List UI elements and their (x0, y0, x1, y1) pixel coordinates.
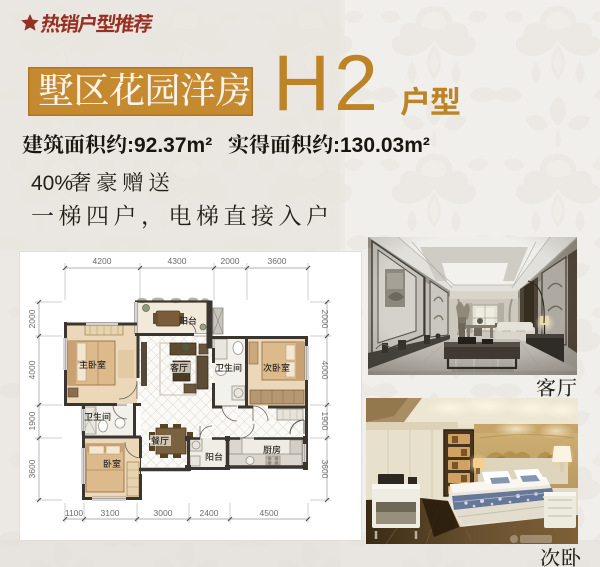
svg-text:4000: 4000 (27, 360, 37, 379)
svg-text:1900: 1900 (320, 412, 330, 431)
svg-text::92.37m²: :92.37m² (127, 134, 212, 157)
svg-text:3600: 3600 (320, 460, 330, 479)
svg-text:2000: 2000 (27, 309, 37, 328)
svg-text:1100: 1100 (65, 508, 84, 518)
svg-text:2000: 2000 (320, 310, 330, 329)
svg-text:3600: 3600 (27, 459, 37, 478)
svg-text:4300: 4300 (168, 256, 187, 266)
svg-text:4200: 4200 (93, 256, 112, 266)
svg-text:2400: 2400 (200, 508, 219, 518)
svg-text:4500: 4500 (260, 508, 279, 518)
svg-text:3000: 3000 (154, 508, 173, 518)
svg-text:4000: 4000 (320, 361, 330, 380)
svg-text:3600: 3600 (268, 256, 287, 266)
svg-text:H2: H2 (273, 38, 382, 127)
svg-text:2000: 2000 (221, 256, 240, 266)
svg-text::130.03m²: :130.03m² (333, 134, 430, 157)
svg-text:3100: 3100 (101, 508, 120, 518)
svg-text:1900: 1900 (27, 411, 37, 430)
svg-text:40%: 40% (31, 172, 73, 195)
